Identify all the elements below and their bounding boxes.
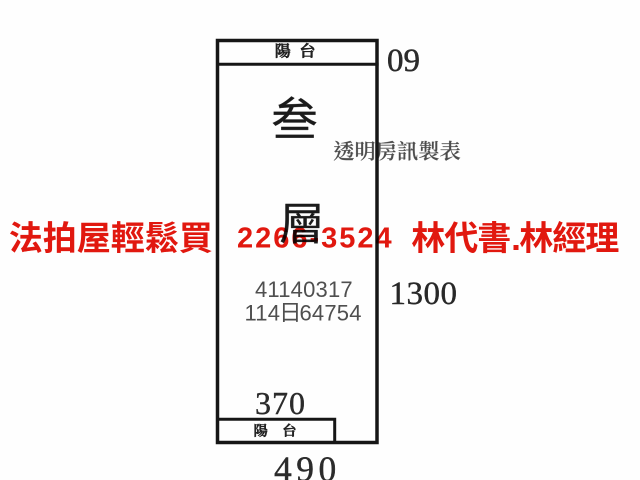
- svg-text:370: 370: [255, 385, 306, 421]
- svg-text:09: 09: [387, 43, 420, 79]
- svg-text:64754: 64754: [300, 301, 362, 326]
- svg-text:1300: 1300: [390, 276, 458, 312]
- svg-text:114: 114: [245, 301, 281, 326]
- svg-text:2266-3524: 2266-3524: [237, 223, 394, 255]
- svg-text:41140317: 41140317: [255, 277, 353, 302]
- svg-text:490: 490: [274, 449, 341, 480]
